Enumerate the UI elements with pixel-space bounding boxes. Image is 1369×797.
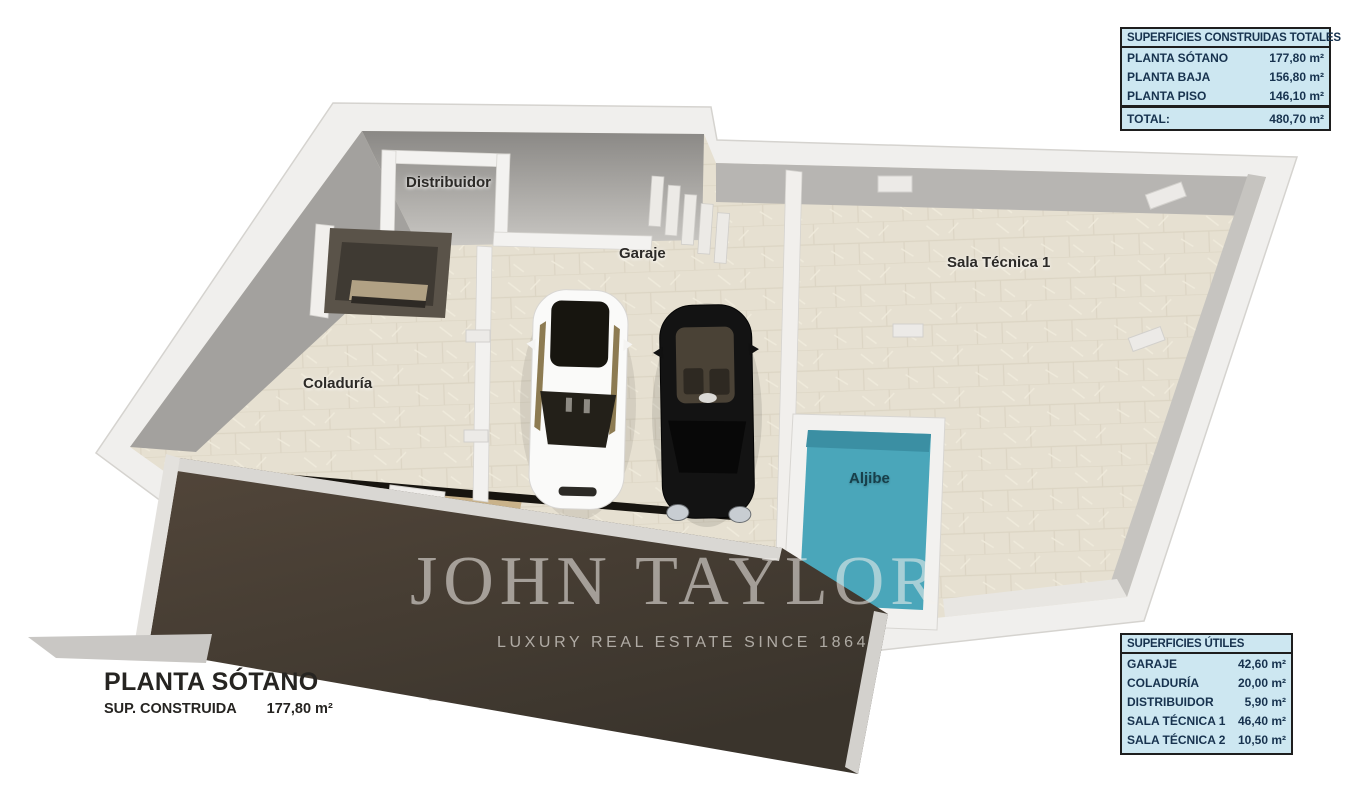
row-value: 42,60 m² xyxy=(1238,657,1286,671)
row-label: COLADURÍA xyxy=(1127,676,1199,690)
built-area-value: 177,80 m² xyxy=(267,701,333,717)
plan-built-area: SUP. CONSTRUIDA177,80 m² xyxy=(104,701,333,717)
constructed-areas-title: SUPERFICIES CONSTRUIDAS TOTALES xyxy=(1122,29,1329,48)
black-car xyxy=(652,304,762,524)
constructed-areas-table: SUPERFICIES CONSTRUIDAS TOTALES PLANTA S… xyxy=(1120,27,1331,131)
row-label: PLANTA SÓTANO xyxy=(1127,51,1228,65)
useful-areas-table: SUPERFICIES ÚTILES GARAJE 42,60 m² COLAD… xyxy=(1120,633,1293,755)
table-row: SALA TÉCNICA 1 46,40 m² xyxy=(1122,711,1291,730)
table-row: PLANTA PISO 146,10 m² xyxy=(1122,86,1329,105)
white-car xyxy=(522,289,634,511)
room-label-coladuria: Coladuría xyxy=(303,375,372,392)
floorplan-page: Distribuidor Garaje Sala Técnica 1 Colad… xyxy=(0,0,1369,797)
table-row: DISTRIBUIDOR 5,90 m² xyxy=(1122,692,1291,711)
total-label: TOTAL: xyxy=(1127,112,1170,126)
row-value: 46,40 m² xyxy=(1238,714,1286,728)
wall-stub-sala-1 xyxy=(878,176,912,192)
watermark-brand: JOHN TAYLOR xyxy=(410,542,943,622)
row-value: 5,90 m² xyxy=(1245,695,1286,709)
row-label: PLANTA BAJA xyxy=(1127,70,1210,84)
room-label-sala-tecnica-1: Sala Técnica 1 xyxy=(947,254,1050,271)
row-label: DISTRIBUIDOR xyxy=(1127,695,1214,709)
row-value: 10,50 m² xyxy=(1238,733,1286,747)
stairwell xyxy=(310,224,452,318)
wall-stub-sala-2 xyxy=(893,324,923,337)
row-value: 20,00 m² xyxy=(1238,676,1286,690)
wall-stub-left-2 xyxy=(464,430,488,442)
room-label-distribuidor: Distribuidor xyxy=(406,174,491,191)
room-label-aljibe: Aljibe xyxy=(849,470,890,487)
row-label: GARAJE xyxy=(1127,657,1177,671)
table-row: PLANTA BAJA 156,80 m² xyxy=(1122,67,1329,86)
plan-title: PLANTA SÓTANO xyxy=(104,668,333,697)
table-row: PLANTA SÓTANO 177,80 m² xyxy=(1122,48,1329,67)
table-row: GARAJE 42,60 m² xyxy=(1122,654,1291,673)
table-row: COLADURÍA 20,00 m² xyxy=(1122,673,1291,692)
watermark-tagline: LUXURY REAL ESTATE SINCE 1864 xyxy=(497,634,869,652)
built-area-label: SUP. CONSTRUIDA xyxy=(104,701,237,717)
row-label: SALA TÉCNICA 1 xyxy=(1127,714,1225,728)
row-label: SALA TÉCNICA 2 xyxy=(1127,733,1225,747)
row-label: PLANTA PISO xyxy=(1127,89,1206,103)
table-total-row: TOTAL: 480,70 m² xyxy=(1122,105,1329,129)
wall-stub-left-1 xyxy=(466,330,490,342)
row-value: 156,80 m² xyxy=(1269,70,1324,84)
plan-caption: PLANTA SÓTANO SUP. CONSTRUIDA177,80 m² xyxy=(104,668,333,717)
total-value: 480,70 m² xyxy=(1269,112,1324,126)
room-label-garaje: Garaje xyxy=(619,245,666,262)
row-value: 177,80 m² xyxy=(1269,51,1324,65)
table-row: SALA TÉCNICA 2 10,50 m² xyxy=(1122,730,1291,749)
row-value: 146,10 m² xyxy=(1269,89,1324,103)
driveway-apron xyxy=(28,634,212,663)
useful-areas-title: SUPERFICIES ÚTILES xyxy=(1122,635,1291,654)
